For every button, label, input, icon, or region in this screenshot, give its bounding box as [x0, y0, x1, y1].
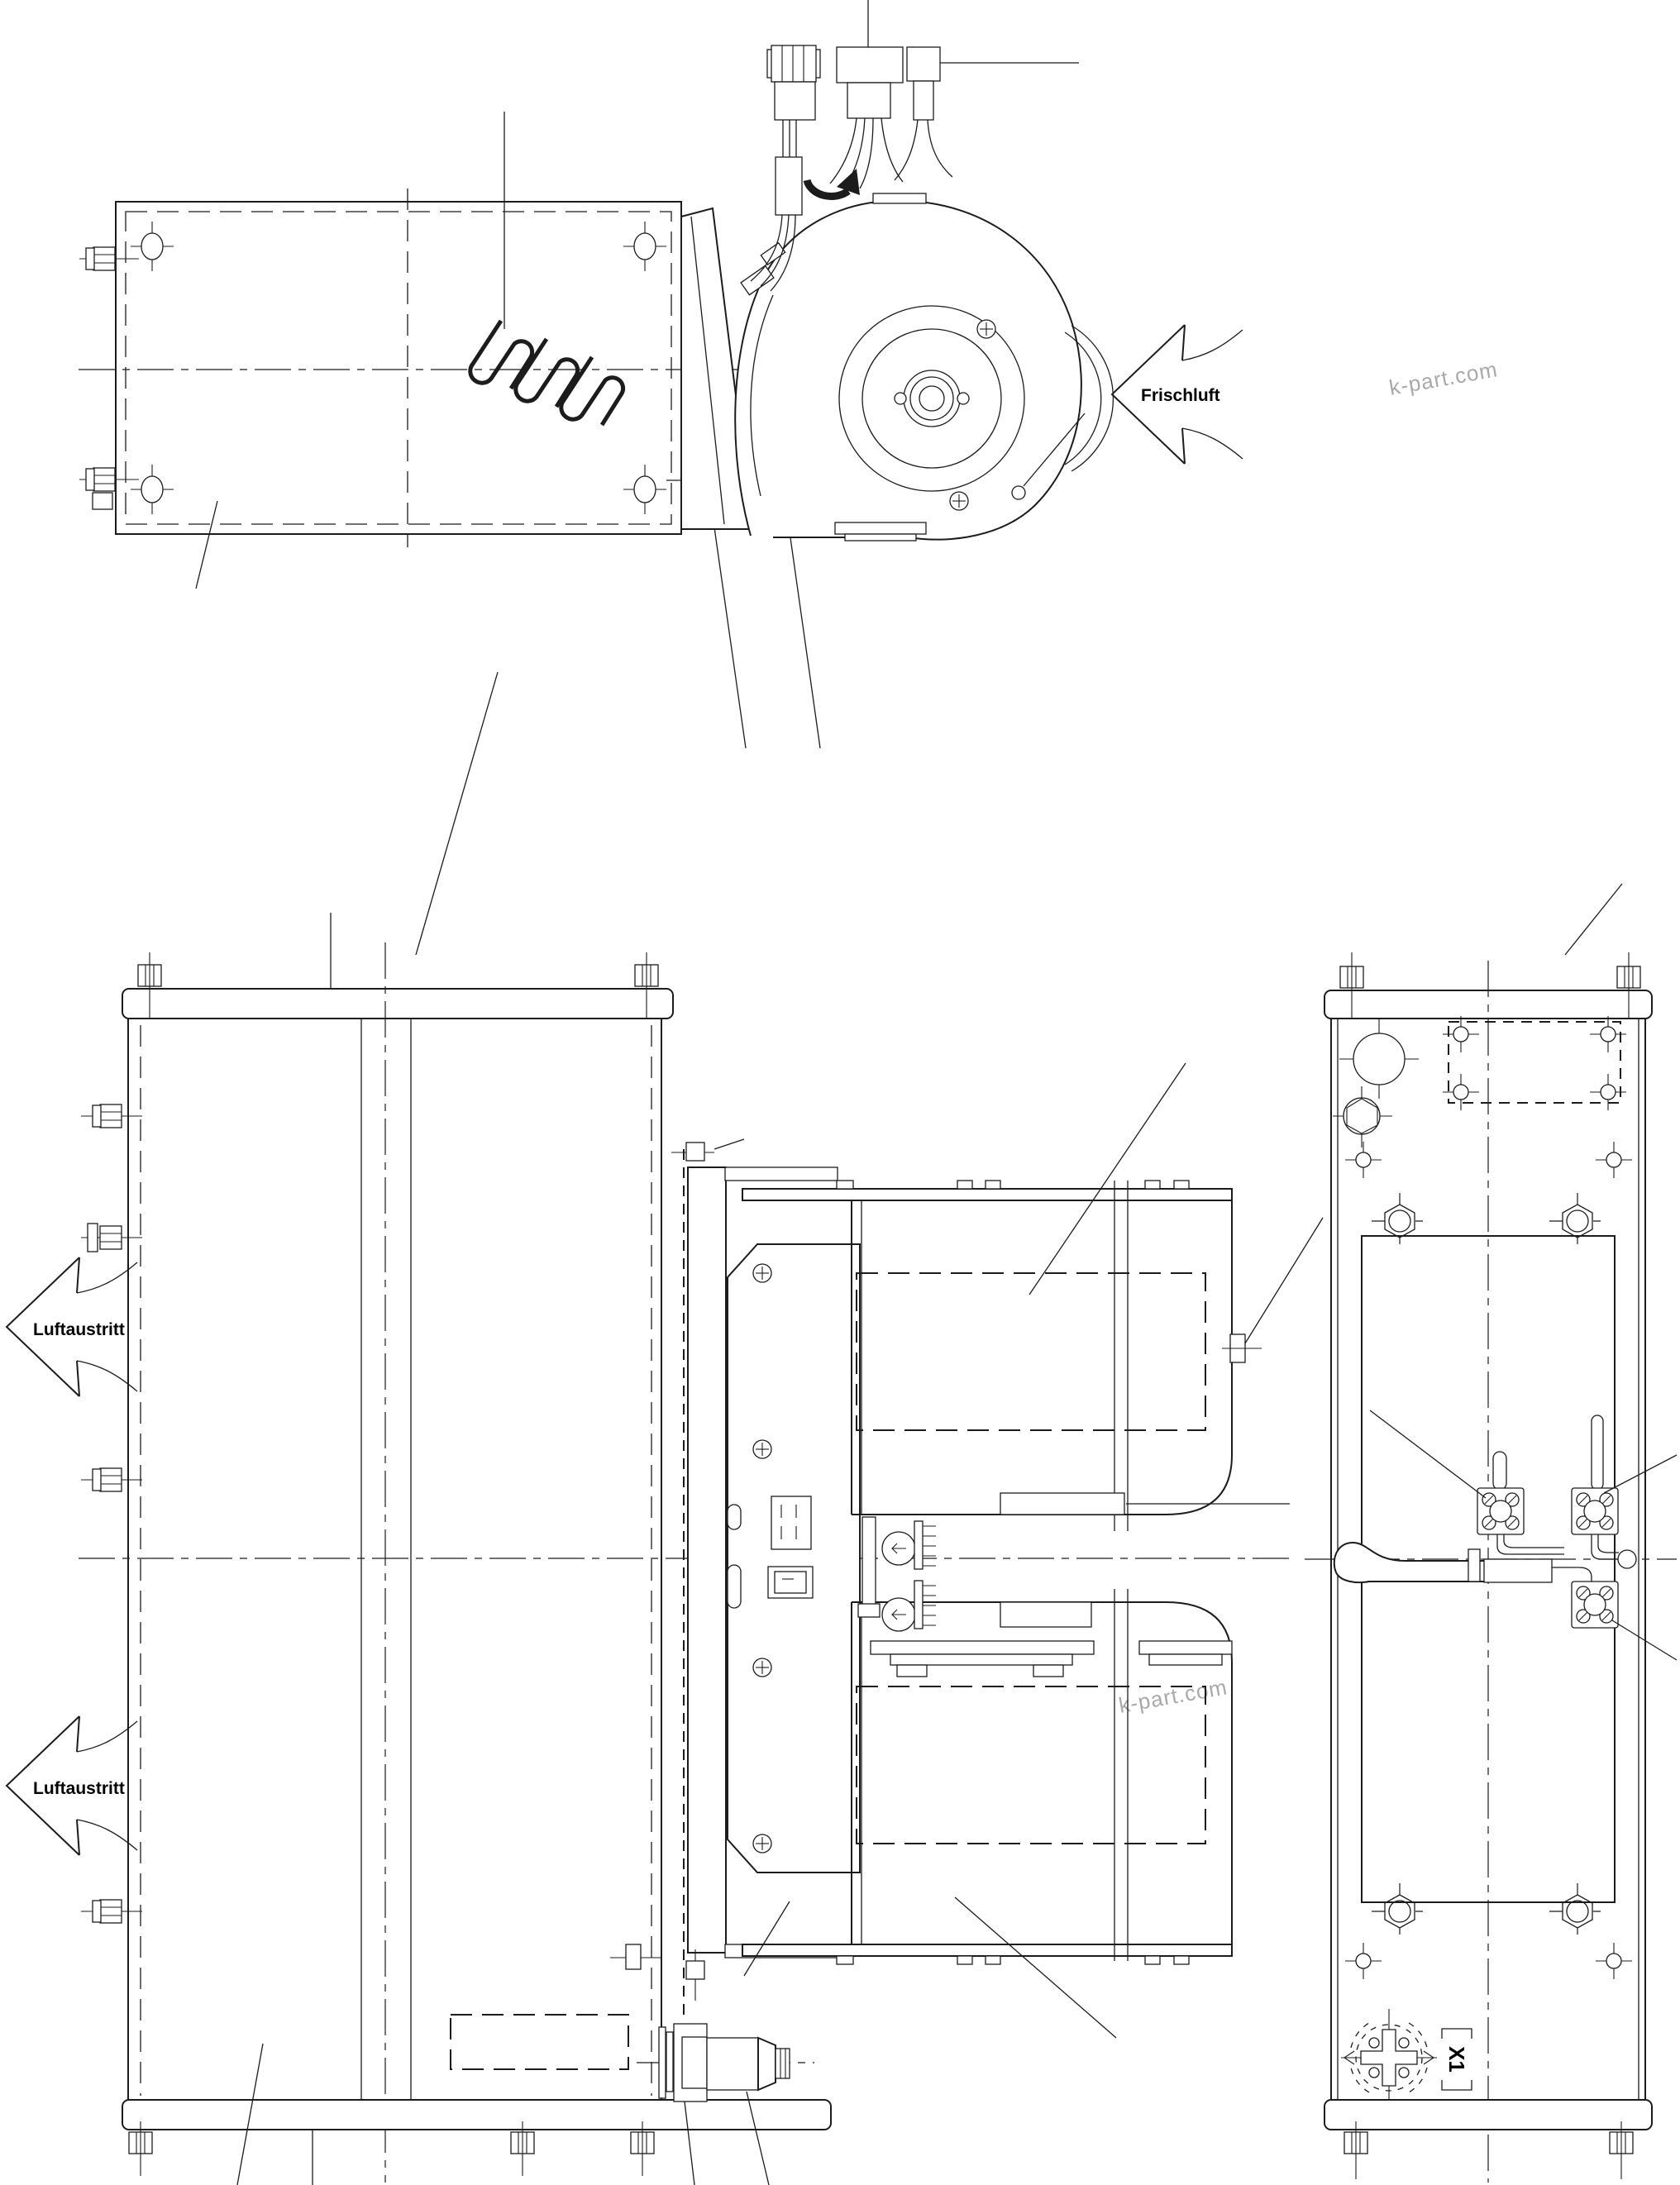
phillips-screw-icon — [753, 1834, 771, 1853]
leader-line — [955, 1897, 1116, 2038]
terminal-block — [1477, 1488, 1524, 1534]
top-view-housing — [116, 202, 681, 534]
air-outlet-flow-top: Luftaustritt — [7, 1257, 137, 1396]
leader-line — [416, 672, 498, 955]
leader-line — [1245, 1218, 1323, 1343]
blower-wheel-upper — [857, 1273, 1205, 1430]
bottom-flange — [1324, 2100, 1652, 2130]
rear-view: X1 — [1305, 884, 1677, 2183]
leader-line — [744, 1901, 790, 1976]
cover-screw-bumps — [837, 1181, 1189, 1964]
leader-line — [785, 503, 820, 748]
phillips-screw-icon — [950, 492, 968, 510]
fresh-air-flow: Frischluft — [1112, 325, 1243, 464]
phillips-screw-icon — [977, 320, 995, 338]
air-outlet-label-top: Luftaustritt — [33, 1320, 125, 1339]
phillips-screw-icon — [753, 1264, 771, 1282]
watermark: k-part.com — [1387, 356, 1500, 400]
junction-block — [1484, 1559, 1552, 1582]
air-outlet-label-bottom: Luftaustritt — [33, 1779, 125, 1798]
phillips-screw-icon — [753, 1658, 771, 1677]
side-bolt — [93, 468, 115, 491]
mounting-plate — [728, 1244, 860, 1873]
terminal-block — [1572, 1582, 1618, 1628]
rotation-arrow-icon — [807, 169, 860, 197]
terminal-pin — [1493, 1452, 1506, 1490]
side-panel — [688, 1167, 726, 1953]
bottom-flange — [122, 2100, 831, 2130]
watermark: k-part.com — [1117, 1674, 1229, 1718]
leader-line — [1565, 884, 1622, 955]
leader-line — [714, 1139, 744, 1149]
engineering-drawing-page: k-part.com k-part.com k-part.com k-part.… — [0, 0, 1680, 2185]
side-section-view — [671, 1063, 1323, 2038]
leader-line — [1029, 1063, 1186, 1295]
terminal-block — [1572, 1488, 1618, 1534]
phillips-screw-icon — [753, 1440, 771, 1458]
blower-assembly — [681, 193, 1113, 541]
air-outlet-flow-bottom: Luftaustritt — [7, 1716, 137, 1855]
heater-unit-technical-drawing: k-part.com k-part.com k-part.com k-part.… — [0, 0, 1680, 2185]
sensor-connector — [895, 47, 1079, 180]
x1-label: X1 — [1444, 2046, 1469, 2073]
blower-housing-upper — [852, 1200, 1232, 1515]
top-cover-plate — [742, 1189, 1232, 1200]
terminal-pin — [1592, 1415, 1603, 1490]
main-harness-connector — [830, 0, 903, 188]
top-flange — [122, 989, 673, 1019]
bottom-cover-plate — [742, 1944, 1232, 1956]
leader-line — [713, 516, 746, 748]
fresh-air-label: Frischluft — [1141, 386, 1220, 405]
front-view-housing — [128, 1019, 661, 2100]
side-bolt — [93, 247, 115, 270]
